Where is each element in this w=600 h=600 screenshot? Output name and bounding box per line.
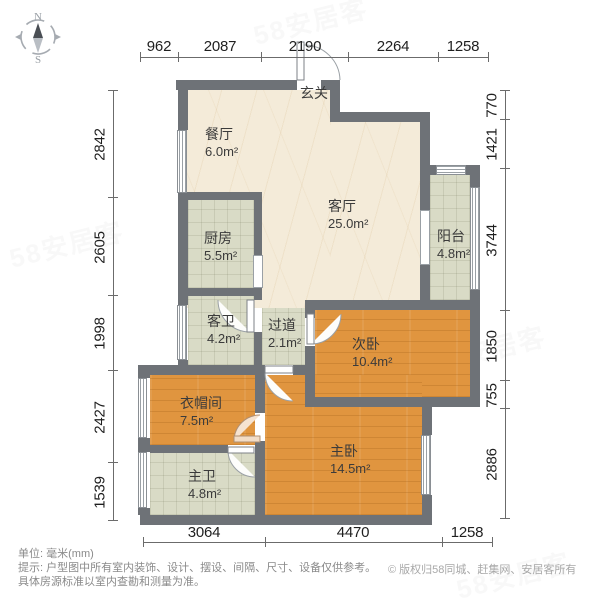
room-area: 4.2m² xyxy=(207,330,240,347)
wall xyxy=(420,112,430,165)
room-label-cloakroom: 衣帽间 7.5m² xyxy=(180,395,222,429)
floor-plan-page: 58安居客 58安居客 58安居客 58安居客 N S xyxy=(0,0,600,600)
kitchen-doorway xyxy=(253,255,263,288)
wall xyxy=(178,80,188,130)
wall xyxy=(150,445,228,453)
room-name: 衣帽间 xyxy=(180,395,222,412)
compass-north-label: N xyxy=(34,11,42,23)
dim-value: 770 xyxy=(484,86,501,126)
dim-value: 755 xyxy=(484,376,501,416)
room-area: 2.1m² xyxy=(268,334,301,351)
window xyxy=(436,165,466,175)
room-label-hallway: 过道 2.1m² xyxy=(268,317,301,351)
wall xyxy=(254,296,262,300)
window xyxy=(138,378,147,438)
room-name: 阳台 xyxy=(437,228,470,245)
window xyxy=(138,452,147,508)
dim-value: 3744 xyxy=(484,221,501,261)
room-area: 4.8m² xyxy=(188,485,221,502)
wall xyxy=(254,332,262,366)
balcony-doorway xyxy=(420,210,430,265)
wall xyxy=(305,397,480,407)
window xyxy=(177,305,187,360)
master-bedroom-door-leaf xyxy=(265,366,293,373)
compass-west-arrow xyxy=(15,34,21,40)
wall xyxy=(470,175,480,187)
room-area: 5.5m² xyxy=(204,247,237,264)
room-label-master-bedroom: 主卧 14.5m² xyxy=(330,443,370,477)
room-label-entry: 玄关 xyxy=(300,85,328,102)
compass-east-arrow xyxy=(55,34,61,40)
wall xyxy=(420,265,430,300)
wall xyxy=(466,165,480,175)
wall xyxy=(470,310,480,397)
room-area: 7.5m² xyxy=(180,412,222,429)
room-area: 6.0m² xyxy=(205,143,238,160)
room-label-balcony: 阳台 4.8m² xyxy=(437,228,470,262)
compass-needle-south xyxy=(33,38,43,53)
wall xyxy=(176,80,297,90)
dim-value: 1850 xyxy=(484,327,501,367)
window xyxy=(421,435,431,495)
dim-value: 1421 xyxy=(484,125,501,165)
room-name: 主卫 xyxy=(188,468,221,485)
room-name: 厨房 xyxy=(204,230,237,247)
wall xyxy=(293,365,315,375)
wall xyxy=(255,441,265,515)
dim-value: 2842 xyxy=(92,125,109,165)
room-name: 次卧 xyxy=(352,336,392,353)
room-area: 25.0m² xyxy=(328,215,368,232)
dim-value: 4470 xyxy=(323,524,383,541)
room-name: 玄关 xyxy=(300,85,328,102)
tip-line2: 具体房源标准以室内查勘和测量为准。 xyxy=(18,575,205,589)
wall xyxy=(305,300,480,310)
dim-value: 2886 xyxy=(484,445,501,485)
second-bedroom-door-leaf xyxy=(307,314,314,344)
watermark: 58安居客 xyxy=(5,211,127,275)
wall xyxy=(330,112,430,122)
unit-note: 单位: 毫米(mm) xyxy=(18,547,94,561)
dim-value: 2427 xyxy=(92,398,109,438)
tip-line1: 提示: 户型图中所有室内装饰、设计、摆设、间隔、尺寸、设备仅供参考。 xyxy=(18,561,376,575)
room-label-dining: 餐厅 6.0m² xyxy=(205,126,238,160)
wall xyxy=(138,508,150,515)
compass-needle-north xyxy=(33,23,43,38)
wall xyxy=(305,310,315,318)
room-name: 过道 xyxy=(268,317,301,334)
copyright: © 版权归58同城、赶集网、安居客所有 xyxy=(388,561,576,577)
compass: N S xyxy=(8,6,72,70)
dim-value: 3064 xyxy=(174,524,234,541)
room-name: 主卧 xyxy=(330,443,370,460)
dim-value: 1258 xyxy=(442,524,492,541)
room-name: 客厅 xyxy=(328,198,368,215)
wall xyxy=(178,288,262,296)
dim-value: 2190 xyxy=(275,38,335,55)
dim-value: 2264 xyxy=(363,38,423,55)
room-label-kitchen: 厨房 5.5m² xyxy=(204,230,237,264)
wall xyxy=(255,365,265,413)
dim-value: 2605 xyxy=(92,228,109,268)
wall xyxy=(138,438,150,452)
room-label-living: 客厅 25.0m² xyxy=(328,198,368,232)
room-name: 餐厅 xyxy=(205,126,238,143)
room-area: 10.4m² xyxy=(352,353,392,370)
window xyxy=(470,187,480,290)
dim-value: 1539 xyxy=(92,473,109,513)
room-label-master-bath: 主卫 4.8m² xyxy=(188,468,221,502)
room-area: 14.5m² xyxy=(330,460,370,477)
wall xyxy=(178,192,262,200)
wall xyxy=(140,365,265,375)
dim-value: 1258 xyxy=(438,38,488,55)
room-label-second-bedroom: 次卧 10.4m² xyxy=(352,336,392,370)
room-area: 4.8m² xyxy=(437,245,470,262)
dim-value: 962 xyxy=(139,38,179,55)
wall xyxy=(254,200,262,255)
dim-value: 2087 xyxy=(190,38,250,55)
wall xyxy=(178,360,188,365)
wall xyxy=(422,407,432,435)
window xyxy=(177,130,187,193)
room-label-guest-bath: 客卫 4.2m² xyxy=(207,313,240,347)
wall xyxy=(420,165,430,210)
room-name: 客卫 xyxy=(207,313,240,330)
compass-south-label: S xyxy=(35,54,41,66)
dim-value: 1998 xyxy=(92,314,109,354)
